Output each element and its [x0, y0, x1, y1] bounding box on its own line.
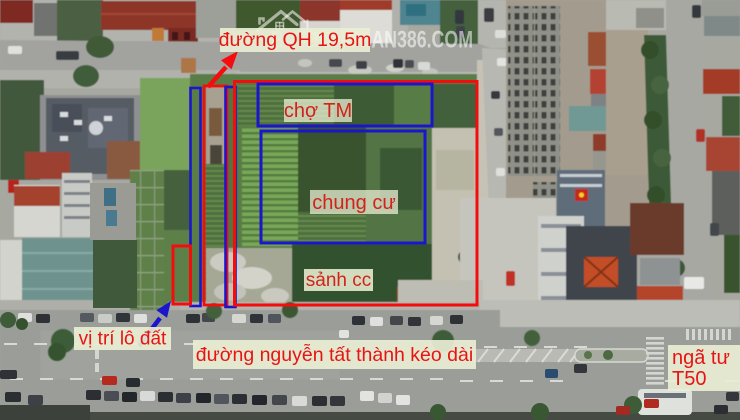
svg-text:T50: T50	[672, 368, 706, 390]
svg-text:chung cư: chung cư	[312, 192, 395, 214]
svg-text:sảnh cc: sảnh cc	[306, 270, 371, 291]
svg-text:chợ TM: chợ TM	[284, 100, 352, 122]
svg-text:đường QH 19,5m: đường QH 19,5m	[219, 29, 372, 51]
svg-text:vị trí lô đất: vị trí lô đất	[79, 329, 167, 350]
svg-text:ngã tư: ngã tư	[672, 347, 730, 369]
svg-text:đường nguyễn tất thành kéo dài: đường nguyễn tất thành kéo dài	[196, 343, 473, 366]
